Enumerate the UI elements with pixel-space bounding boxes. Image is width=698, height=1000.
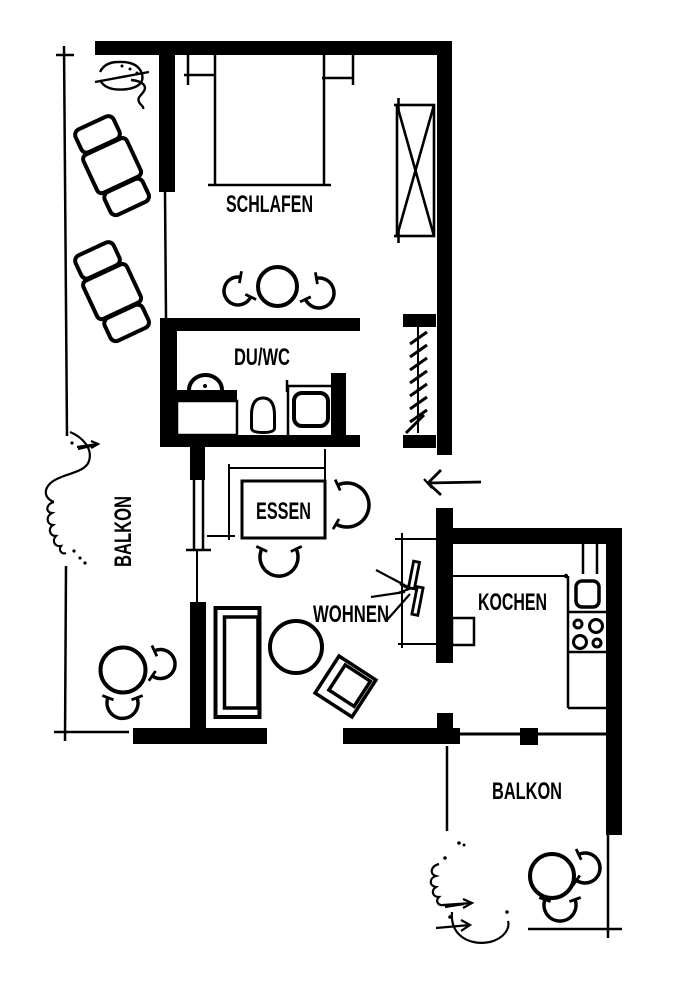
svg-text:SCHLAFEN: SCHLAFEN bbox=[226, 191, 313, 218]
svg-text:BALKON: BALKON bbox=[110, 496, 137, 567]
svg-text:BALKON: BALKON bbox=[492, 778, 562, 805]
svg-text:WOHNEN: WOHNEN bbox=[313, 601, 389, 628]
svg-text:ESSEN: ESSEN bbox=[256, 498, 311, 525]
svg-text:KOCHEN: KOCHEN bbox=[478, 589, 547, 616]
svg-text:DU/WC: DU/WC bbox=[234, 344, 290, 371]
